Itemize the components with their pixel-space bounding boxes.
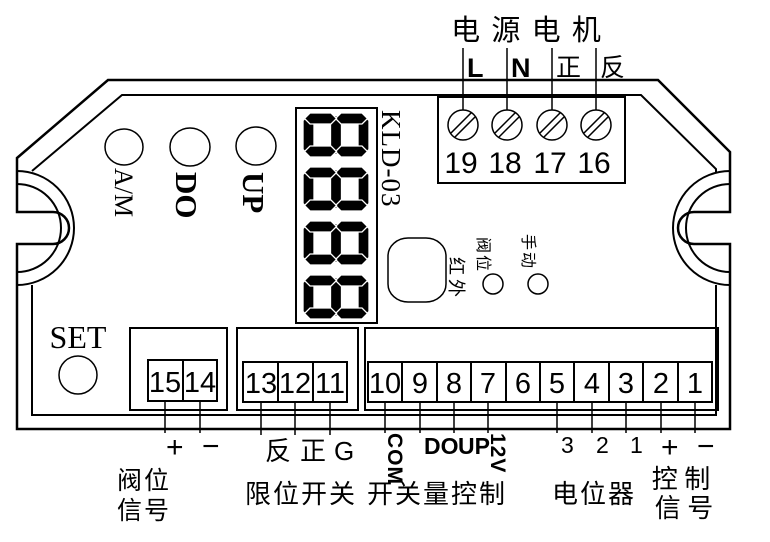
valve-signal-block: 15 14 + − 阀位 信号 (117, 328, 227, 525)
seven-segment-display (296, 108, 377, 323)
terminal-12-function: 正 (300, 437, 326, 466)
do-button-label: DO (169, 172, 204, 219)
board-outline-inner-top (32, 95, 716, 172)
switch-control-caption: 开关量控制 (367, 480, 507, 509)
power-terminal-number-16: 16 (577, 147, 610, 180)
valve-signal-caption-line1: 阀位 (117, 467, 171, 495)
terminal-4-function: 2 (596, 432, 609, 458)
up-button-label: UP (236, 172, 271, 213)
limit-switch-block: 13 12 11 反 正 G 限位开关 (237, 328, 358, 509)
diagram-canvas: A/M DO UP KLD-03 电 源 电 机 L N 正 反 (0, 0, 770, 542)
terminal-9-function: DO (424, 433, 459, 459)
model-label: KLD-03 (376, 110, 406, 207)
power-terminal-label-forward: 正 (556, 55, 581, 82)
terminal-8-function: UP (458, 433, 490, 459)
terminal-5-function: 3 (561, 432, 574, 458)
terminal-number-11: 11 (315, 368, 345, 400)
screw-terminal-16 (581, 110, 611, 140)
terminal-number-14: 14 (184, 367, 216, 399)
mounting-notch-right-arcs (673, 171, 730, 285)
terminal-number-1: 1 (687, 368, 703, 400)
terminal-number-13: 13 (245, 368, 277, 400)
power-terminal-label-reverse: 反 (600, 54, 625, 82)
limit-switch-caption: 限位开关 (245, 480, 357, 509)
kld-03-wiring-diagram: A/M DO UP KLD-03 电 源 电 机 L N 正 反 (0, 0, 770, 542)
control-signal-caption-line1: 控 制 (652, 465, 711, 494)
screw-terminal-19 (448, 110, 478, 140)
indicator-area: 红外 阀位 手动 (388, 234, 548, 302)
control-signal-caption-line2: 信 号 (655, 494, 714, 523)
ir-receiver (388, 238, 446, 302)
terminal-number-6: 6 (515, 368, 531, 400)
display-digit-1 (303, 113, 369, 157)
mounting-notch-left-arcs (17, 171, 74, 285)
power-terminal-number-19: 19 (444, 147, 477, 180)
display-digit-2 (303, 167, 369, 211)
valve-led (483, 274, 503, 294)
infrared-label: 红外 (446, 257, 466, 301)
io-cell-dividers (402, 362, 678, 402)
potentiometer-caption: 电位器 (552, 480, 636, 509)
terminal-number-5: 5 (549, 368, 565, 400)
terminal-3-function: 1 (630, 432, 643, 458)
set-button (59, 356, 97, 394)
terminal-7-function: 12V (486, 433, 509, 473)
display-digit-3 (303, 221, 369, 265)
terminal-13-function: 反 (265, 437, 291, 466)
power-terminal-number-17: 17 (533, 147, 566, 180)
terminal-15-polarity: + (166, 431, 184, 464)
valve-led-label: 阀位 (474, 237, 492, 273)
screw-terminals (448, 110, 611, 140)
terminal-number-15: 15 (149, 367, 181, 399)
display-digit-4 (303, 275, 369, 319)
terminal-14-polarity: − (202, 430, 220, 463)
terminal-11-function: G (334, 436, 354, 466)
terminal-1-polarity: − (697, 430, 715, 463)
terminal-number-4: 4 (584, 368, 600, 400)
power-terminal-label-n: N (511, 53, 531, 83)
screw-terminal-17 (537, 110, 567, 140)
terminal-number-12: 12 (279, 368, 311, 400)
valve-signal-caption-line2: 信号 (117, 497, 171, 525)
am-button (105, 129, 143, 165)
manual-led-label: 手动 (519, 234, 537, 270)
terminal-number-3: 3 (618, 368, 634, 400)
terminal-number-7: 7 (480, 368, 496, 400)
terminal-number-2: 2 (653, 368, 669, 400)
am-button-label: A/M (109, 168, 138, 217)
manual-led (528, 274, 548, 294)
up-button (236, 127, 276, 165)
terminal-number-10: 10 (369, 368, 401, 400)
do-button (170, 128, 210, 166)
set-button-label: SET (50, 319, 107, 355)
screw-terminal-18 (492, 110, 522, 140)
power-motor-title: 电 源 电 机 (451, 14, 603, 47)
terminal-number-9: 9 (412, 368, 428, 400)
panel-buttons: A/M DO UP (105, 127, 276, 219)
power-terminal-number-18: 18 (488, 147, 521, 180)
terminal-10-function: COM (383, 433, 406, 485)
terminal-2-polarity: + (661, 431, 679, 464)
io-terminal-block: 10 9 8 7 6 5 4 3 2 1 COM DO UP 12V 3 2 1… (365, 328, 718, 523)
terminal-number-8: 8 (446, 368, 462, 400)
power-terminal-block: 电 源 电 机 L N 正 反 19 18 17 16 (438, 14, 625, 183)
set-button-group: SET (50, 319, 107, 394)
power-terminal-label-l: L (467, 53, 484, 83)
